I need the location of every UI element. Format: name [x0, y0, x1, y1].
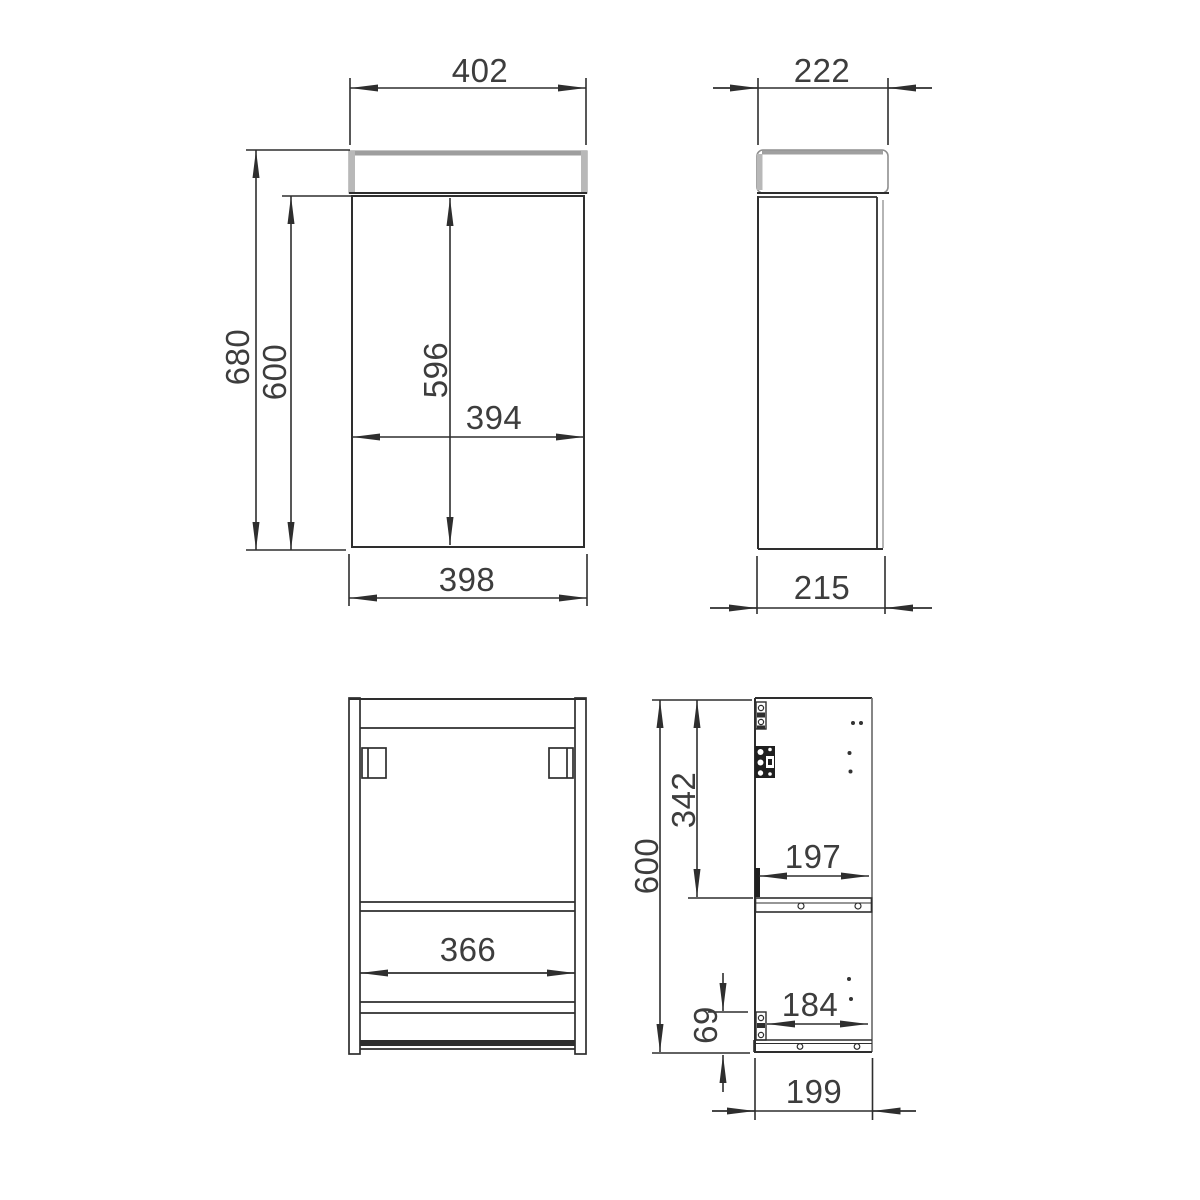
front-carcase — [352, 196, 584, 547]
section-dim-bottom-rail-height — [708, 973, 748, 1092]
side-view — [710, 78, 932, 614]
section-fixing-dots — [847, 721, 863, 1001]
rear-left-hanging-bracket — [362, 748, 386, 778]
section-dim-upper-height — [688, 700, 753, 898]
rear-right-side-panel — [575, 698, 586, 1054]
rear-view — [349, 698, 586, 1054]
front-countertop — [349, 151, 587, 193]
front-dim-overall-width — [350, 78, 586, 145]
section-bottom-rail — [754, 1040, 872, 1052]
drawing-linework — [0, 0, 1200, 1200]
section-middle-rail — [756, 898, 872, 912]
section-middle-hinge-mark — [755, 868, 760, 897]
side-dim-carcase-depth — [710, 556, 932, 614]
section-dim-carcase-height — [652, 700, 752, 1053]
side-dim-overall-depth — [713, 78, 932, 145]
section-dim-base-depth — [712, 1058, 916, 1120]
rear-middle-rail — [360, 902, 575, 911]
side-countertop — [757, 150, 889, 193]
section-wall-bracket — [755, 746, 775, 778]
technical-drawing-page: 402 680 600 596 394 398 222 215 366 600 … — [0, 0, 1200, 1200]
section-bottom-hinge-plate — [756, 1012, 766, 1040]
front-dim-carcase-height — [282, 196, 352, 550]
front-view — [246, 78, 587, 606]
rear-left-side-panel — [349, 698, 360, 1054]
section-top-hinge-plate — [756, 702, 766, 729]
front-dim-overall-height — [246, 150, 350, 550]
rear-right-hanging-bracket — [549, 748, 573, 778]
side-section-view — [652, 698, 916, 1120]
front-dim-carcase-width — [349, 554, 587, 606]
side-carcase — [758, 196, 883, 549]
rear-bottom-rails — [360, 1002, 575, 1049]
